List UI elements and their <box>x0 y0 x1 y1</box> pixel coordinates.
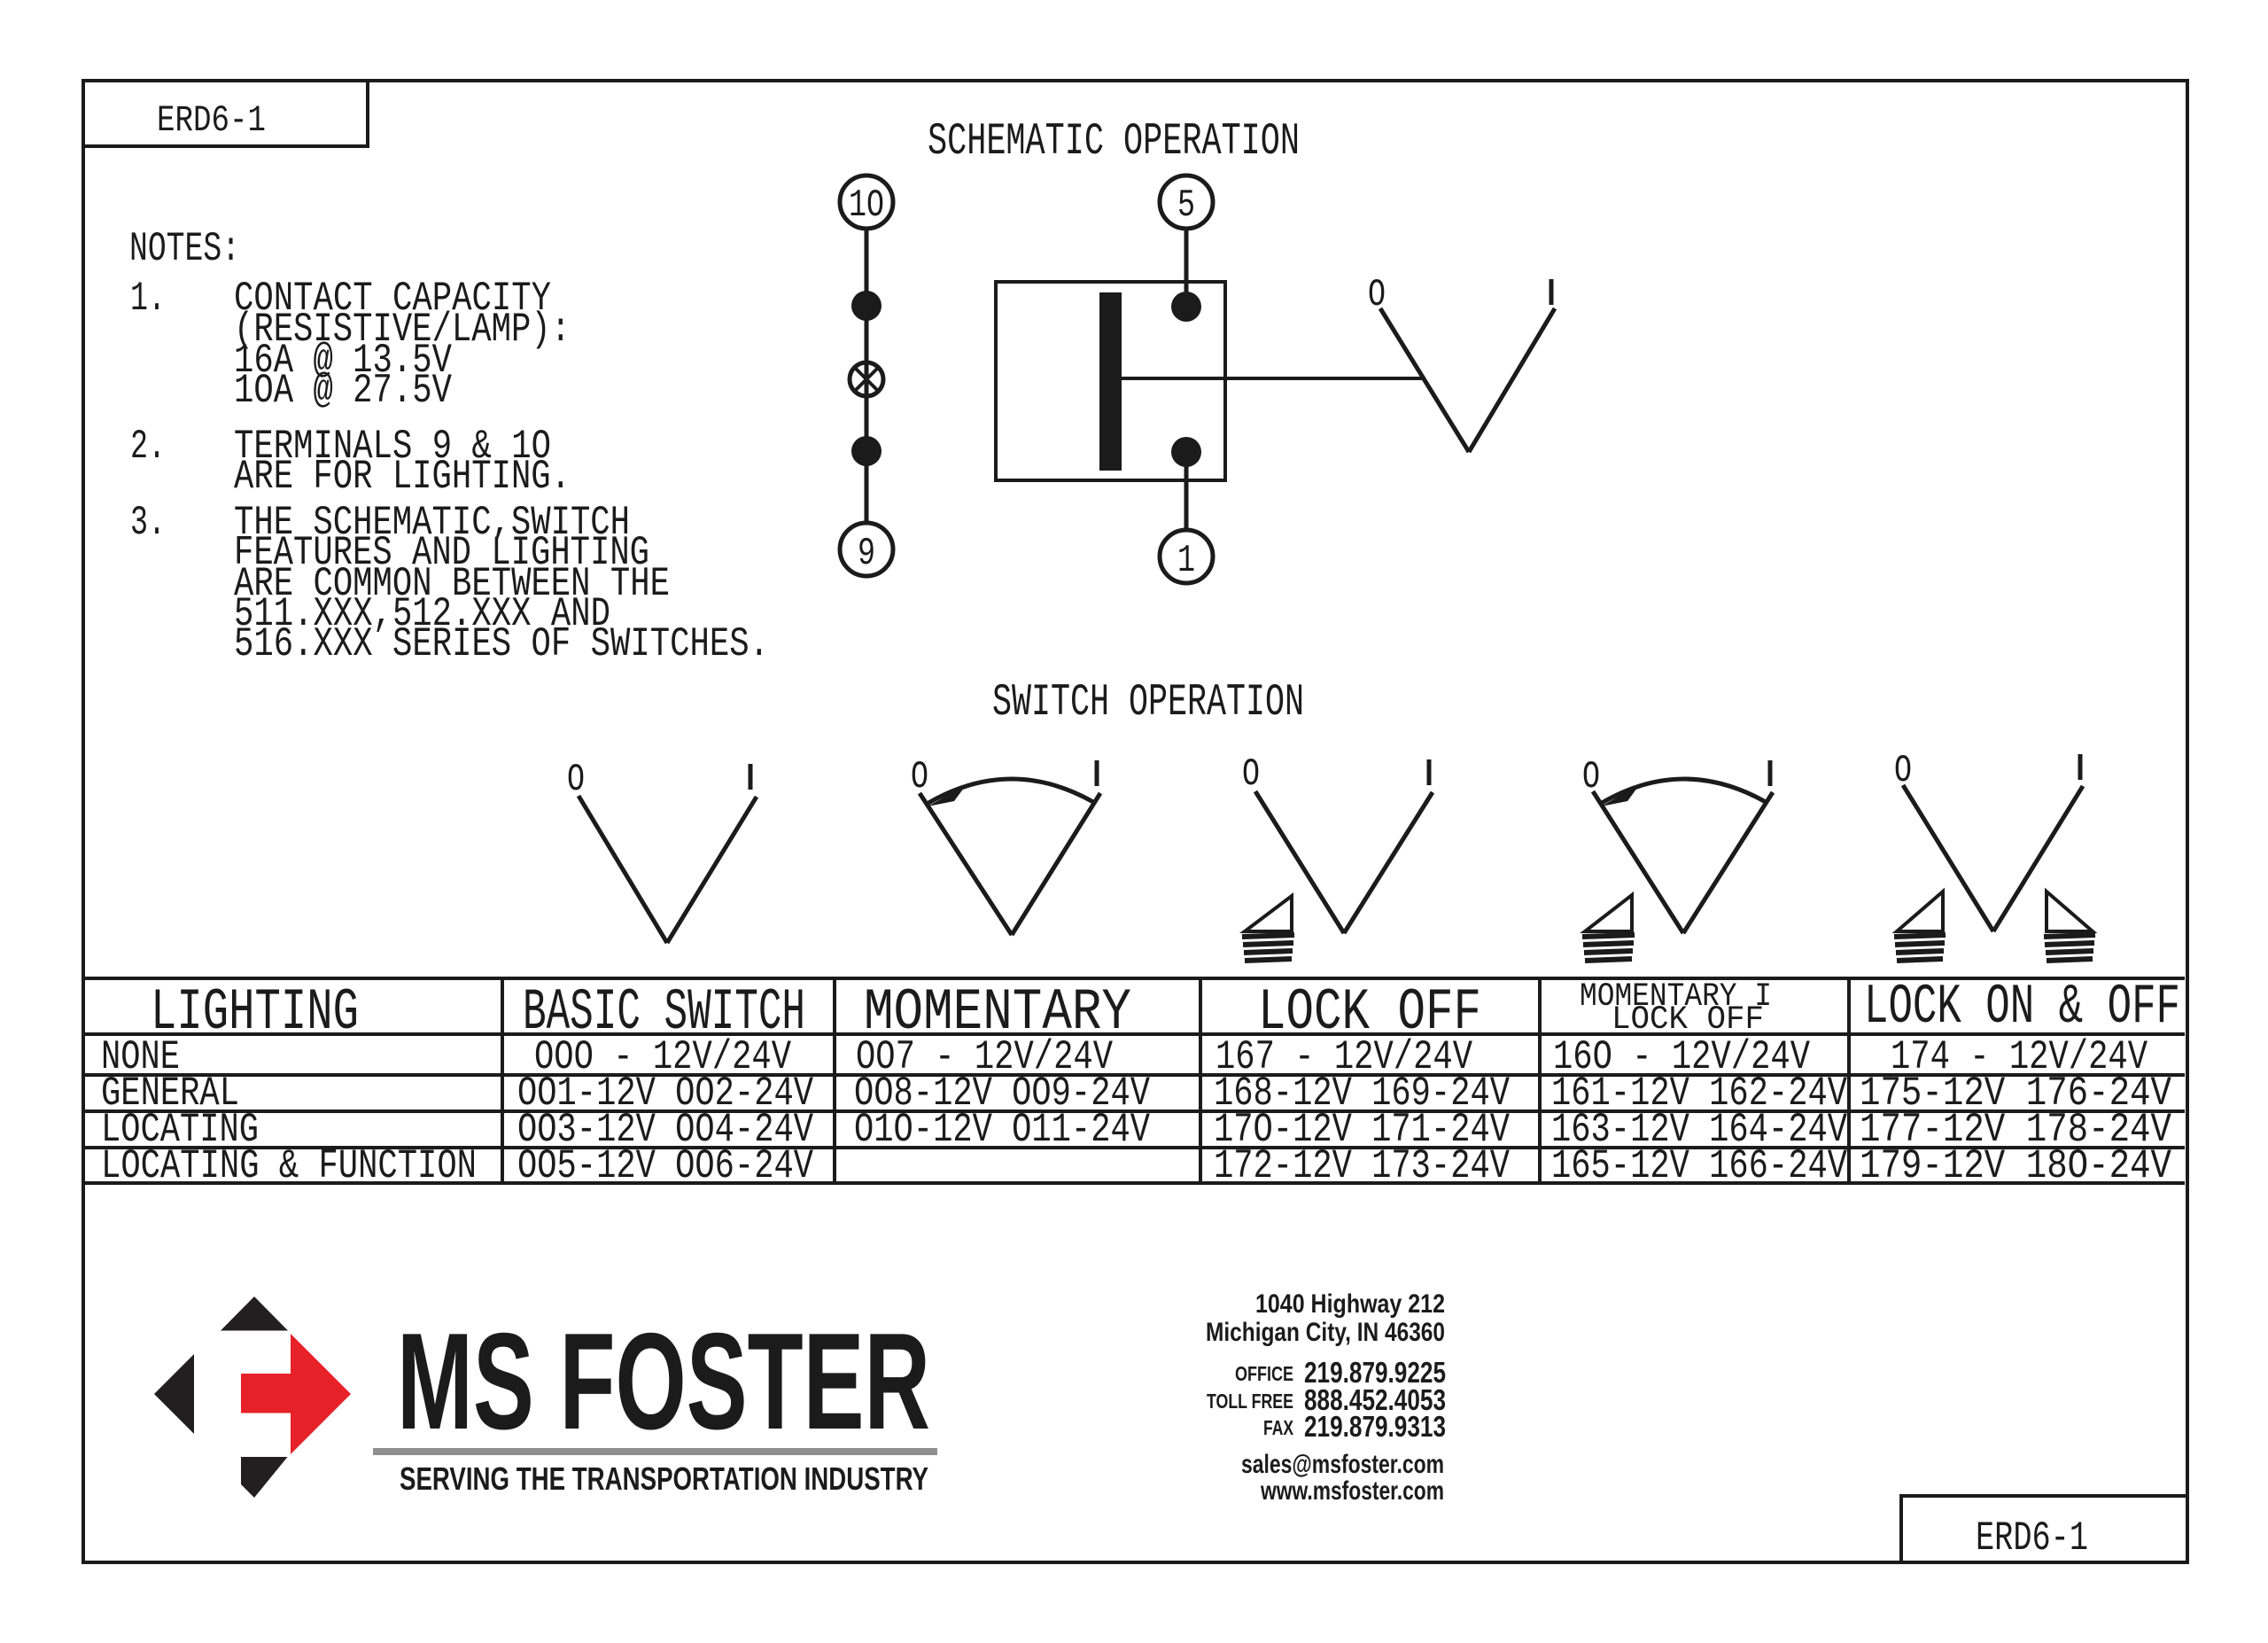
svg-text:165-12V 166-24V: 165-12V 166-24V <box>1551 1143 1847 1189</box>
svg-text:OFFICE: OFFICE <box>1235 1362 1293 1385</box>
svg-text:ERD6-1: ERD6-1 <box>157 99 266 142</box>
svg-text:O: O <box>1242 752 1260 797</box>
svg-text:1.: 1. <box>130 276 166 322</box>
svg-text:Michigan City, IN 46360: Michigan City, IN 46360 <box>1206 1318 1445 1347</box>
svg-text:516.XXX SERIES OF SWITCHES.: 516.XXX SERIES OF SWITCHES. <box>234 621 769 667</box>
svg-text:MS FOSTER: MS FOSTER <box>397 1304 930 1458</box>
svg-text:1O: 1O <box>849 183 884 228</box>
svg-text:O1O-12V O11-24V: O1O-12V O11-24V <box>854 1107 1150 1153</box>
svg-text:3.: 3. <box>130 500 166 546</box>
svg-text:NOTES:: NOTES: <box>129 226 240 272</box>
svg-text:sales@msfoster.com: sales@msfoster.com <box>1241 1450 1444 1479</box>
svg-text:O: O <box>911 755 928 799</box>
svg-text:2.: 2. <box>130 424 166 470</box>
svg-text:LIGHTING: LIGHTING <box>151 979 359 1046</box>
svg-text:SWITCH OPERATION: SWITCH OPERATION <box>992 678 1304 728</box>
svg-text:www.msfoster.com: www.msfoster.com <box>1260 1476 1444 1506</box>
svg-text:LOCATING & FUNCTION: LOCATING & FUNCTION <box>101 1143 477 1189</box>
svg-text:FAX: FAX <box>1263 1416 1293 1439</box>
svg-text:SERVING THE TRANSPORTATION IND: SERVING THE TRANSPORTATION INDUSTRY <box>400 1460 928 1497</box>
svg-text:9: 9 <box>858 532 875 576</box>
svg-text:1OA @ 27.5V: 1OA @ 27.5V <box>234 368 452 414</box>
svg-text:SCHEMATIC OPERATION: SCHEMATIC OPERATION <box>928 117 1300 167</box>
svg-text:ARE FOR LIGHTING.: ARE FOR LIGHTING. <box>234 454 571 500</box>
svg-text:O: O <box>567 758 585 802</box>
svg-text:1040 Highway 212: 1040 Highway 212 <box>1255 1289 1445 1319</box>
svg-text:5: 5 <box>1177 183 1195 228</box>
svg-text:LOCK ON & OFF: LOCK ON & OFF <box>1864 976 2180 1039</box>
svg-text:179-12V 18O-24V: 179-12V 18O-24V <box>1860 1143 2171 1189</box>
svg-text:TOLL FREE: TOLL FREE <box>1207 1390 1293 1413</box>
svg-text:1: 1 <box>1177 539 1195 583</box>
svg-text:OO5-12V OO6-24V: OO5-12V OO6-24V <box>517 1143 813 1189</box>
svg-text:219.879.9313: 219.879.9313 <box>1304 1410 1446 1443</box>
svg-text:LOCK OFF: LOCK OFF <box>1612 1001 1764 1039</box>
svg-text:ERD6-1: ERD6-1 <box>1976 1515 2088 1561</box>
svg-text:172-12V 173-24V: 172-12V 173-24V <box>1214 1143 1510 1189</box>
